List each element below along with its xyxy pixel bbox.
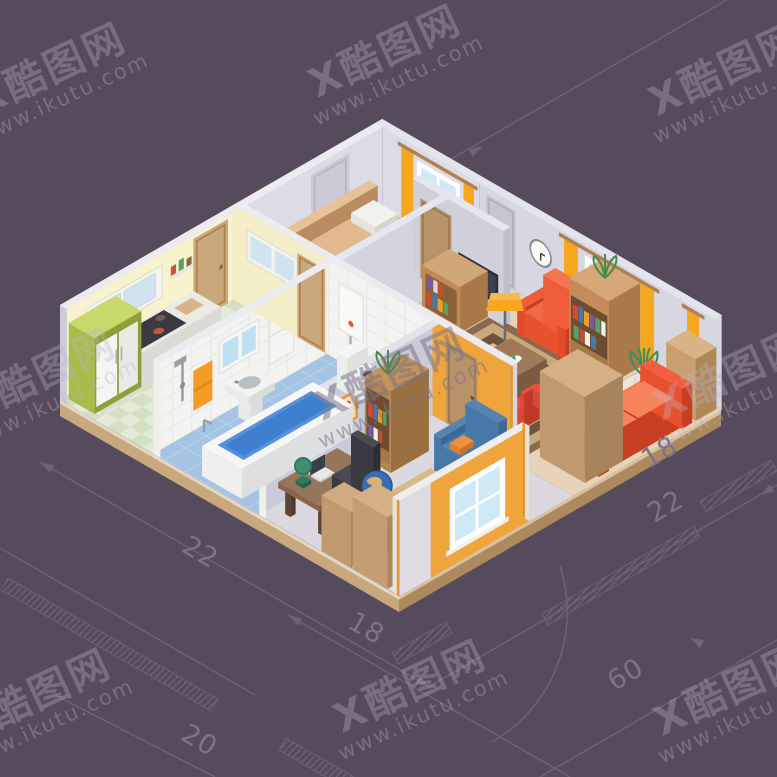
wardrobe	[540, 349, 623, 483]
apartment-building	[60, 119, 722, 612]
front-wall-cap-left	[393, 497, 400, 596]
desk-lamp	[295, 458, 311, 474]
dim-bottom-left: 20	[176, 718, 223, 763]
wall-end-caps-west	[60, 305, 67, 404]
isometric-scene: 22 18 20 18 22 60	[0, 0, 777, 777]
dim-se-total: 60	[602, 652, 649, 697]
front-wall-cap-right	[522, 422, 529, 521]
dim-front-span: 18	[343, 606, 390, 651]
dim-sw-span: 22	[177, 530, 224, 575]
apartment-blueprint-illustration: 22 18 20 18 22 60 X酷图网www.ikutu.com X酷图网…	[0, 0, 777, 777]
dim-se-lower: 22	[642, 484, 689, 529]
nw-wall-cap	[60, 305, 67, 404]
